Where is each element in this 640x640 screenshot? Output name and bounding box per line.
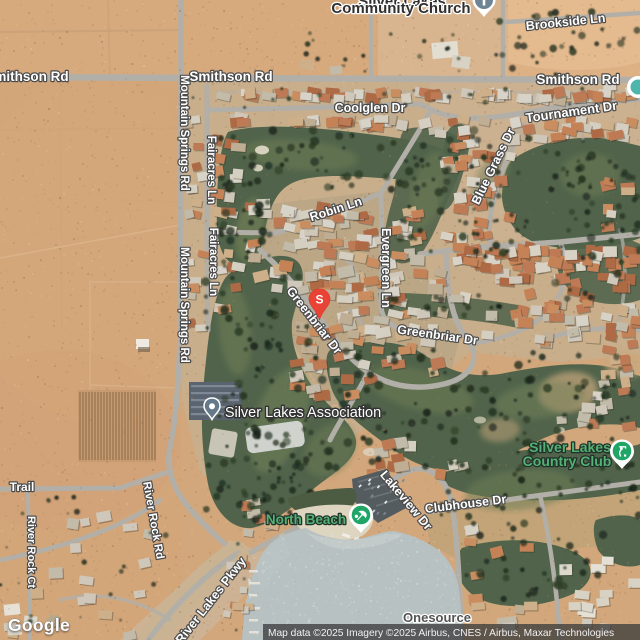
svg-text:Smithson Rd: Smithson Rd bbox=[536, 72, 619, 87]
svg-text:Onesource: Onesource bbox=[403, 610, 471, 625]
svg-text:North Beach: North Beach bbox=[266, 512, 346, 527]
svg-text:S: S bbox=[315, 293, 323, 307]
svg-text:Smithson Rd: Smithson Rd bbox=[0, 69, 69, 84]
svg-text:Community Church: Community Church bbox=[331, 0, 470, 17]
svg-text:Country Club: Country Club bbox=[523, 453, 612, 469]
svg-text:Smithson Rd: Smithson Rd bbox=[189, 69, 272, 84]
svg-text:Coolglen Dr: Coolglen Dr bbox=[335, 101, 406, 115]
svg-text:Silver Lakes Association: Silver Lakes Association bbox=[225, 405, 381, 421]
svg-text:Evergreen Ln: Evergreen Ln bbox=[379, 228, 393, 308]
svg-text:Trail: Trail bbox=[10, 480, 35, 494]
svg-text:Fairacres Ln: Fairacres Ln bbox=[205, 136, 217, 204]
svg-text:Mountain Springs Rd: Mountain Springs Rd bbox=[178, 247, 190, 363]
svg-text:Mountain Springs Rd: Mountain Springs Rd bbox=[178, 75, 190, 191]
svg-text:Map data ©2025 Imagery ©2025 A: Map data ©2025 Imagery ©2025 Airbus, CNE… bbox=[268, 628, 614, 639]
svg-text:River Rock Ct: River Rock Ct bbox=[25, 516, 37, 588]
svg-text:Fairacres Ln: Fairacres Ln bbox=[207, 228, 219, 296]
svg-text:Google: Google bbox=[8, 615, 70, 635]
